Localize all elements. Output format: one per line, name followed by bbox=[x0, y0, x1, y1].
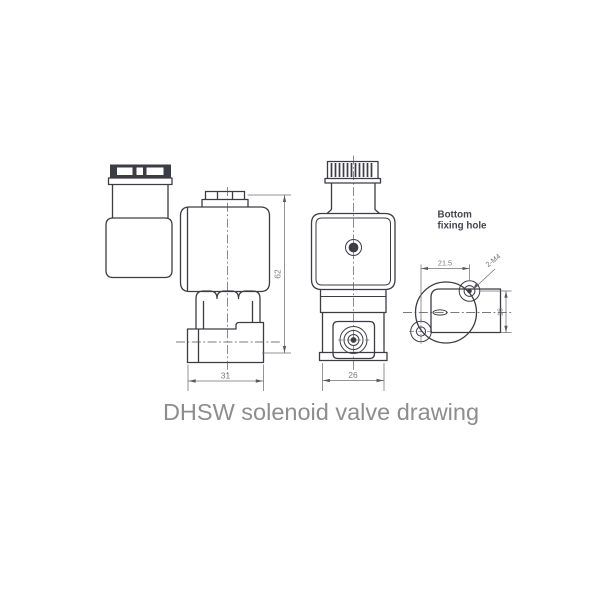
front-view: 26 bbox=[312, 156, 396, 392]
side-view-outline bbox=[106, 178, 270, 363]
holes-vertical-spacing-dimension: 16 bbox=[496, 308, 505, 316]
hole-crosshairs bbox=[409, 319, 434, 345]
solenoid-valve-drawing: 31 62 26 Bottom fixing hole bbox=[0, 0, 600, 600]
side-dimension-arrows bbox=[189, 195, 287, 382]
side-width-dimension: 31 bbox=[221, 371, 231, 381]
bottom-view-label-line1: Bottom bbox=[438, 210, 473, 221]
holes-thread-label: 2-M4 bbox=[484, 252, 503, 269]
drawing-title: DHSW solenoid valve drawing bbox=[163, 399, 479, 425]
drawing-canvas: 31 62 26 Bottom fixing hole bbox=[0, 0, 600, 600]
side-height-dimension: 62 bbox=[273, 269, 283, 279]
hole-center-dot bbox=[468, 289, 472, 293]
bottom-view: Bottom fixing hole 21.5 16 2-M4 bbox=[403, 210, 513, 345]
side-centerlines bbox=[176, 187, 282, 375]
side-view: 31 62 bbox=[106, 165, 291, 391]
front-width-dimension: 26 bbox=[348, 370, 358, 380]
holes-horizontal-spacing-dimension: 21.5 bbox=[438, 259, 452, 268]
connector-cap-slots bbox=[117, 168, 164, 176]
bottom-view-label-line2: fixing hole bbox=[438, 221, 488, 232]
knurl-ribs bbox=[332, 163, 372, 177]
bottom-dimension-lines bbox=[421, 265, 512, 333]
